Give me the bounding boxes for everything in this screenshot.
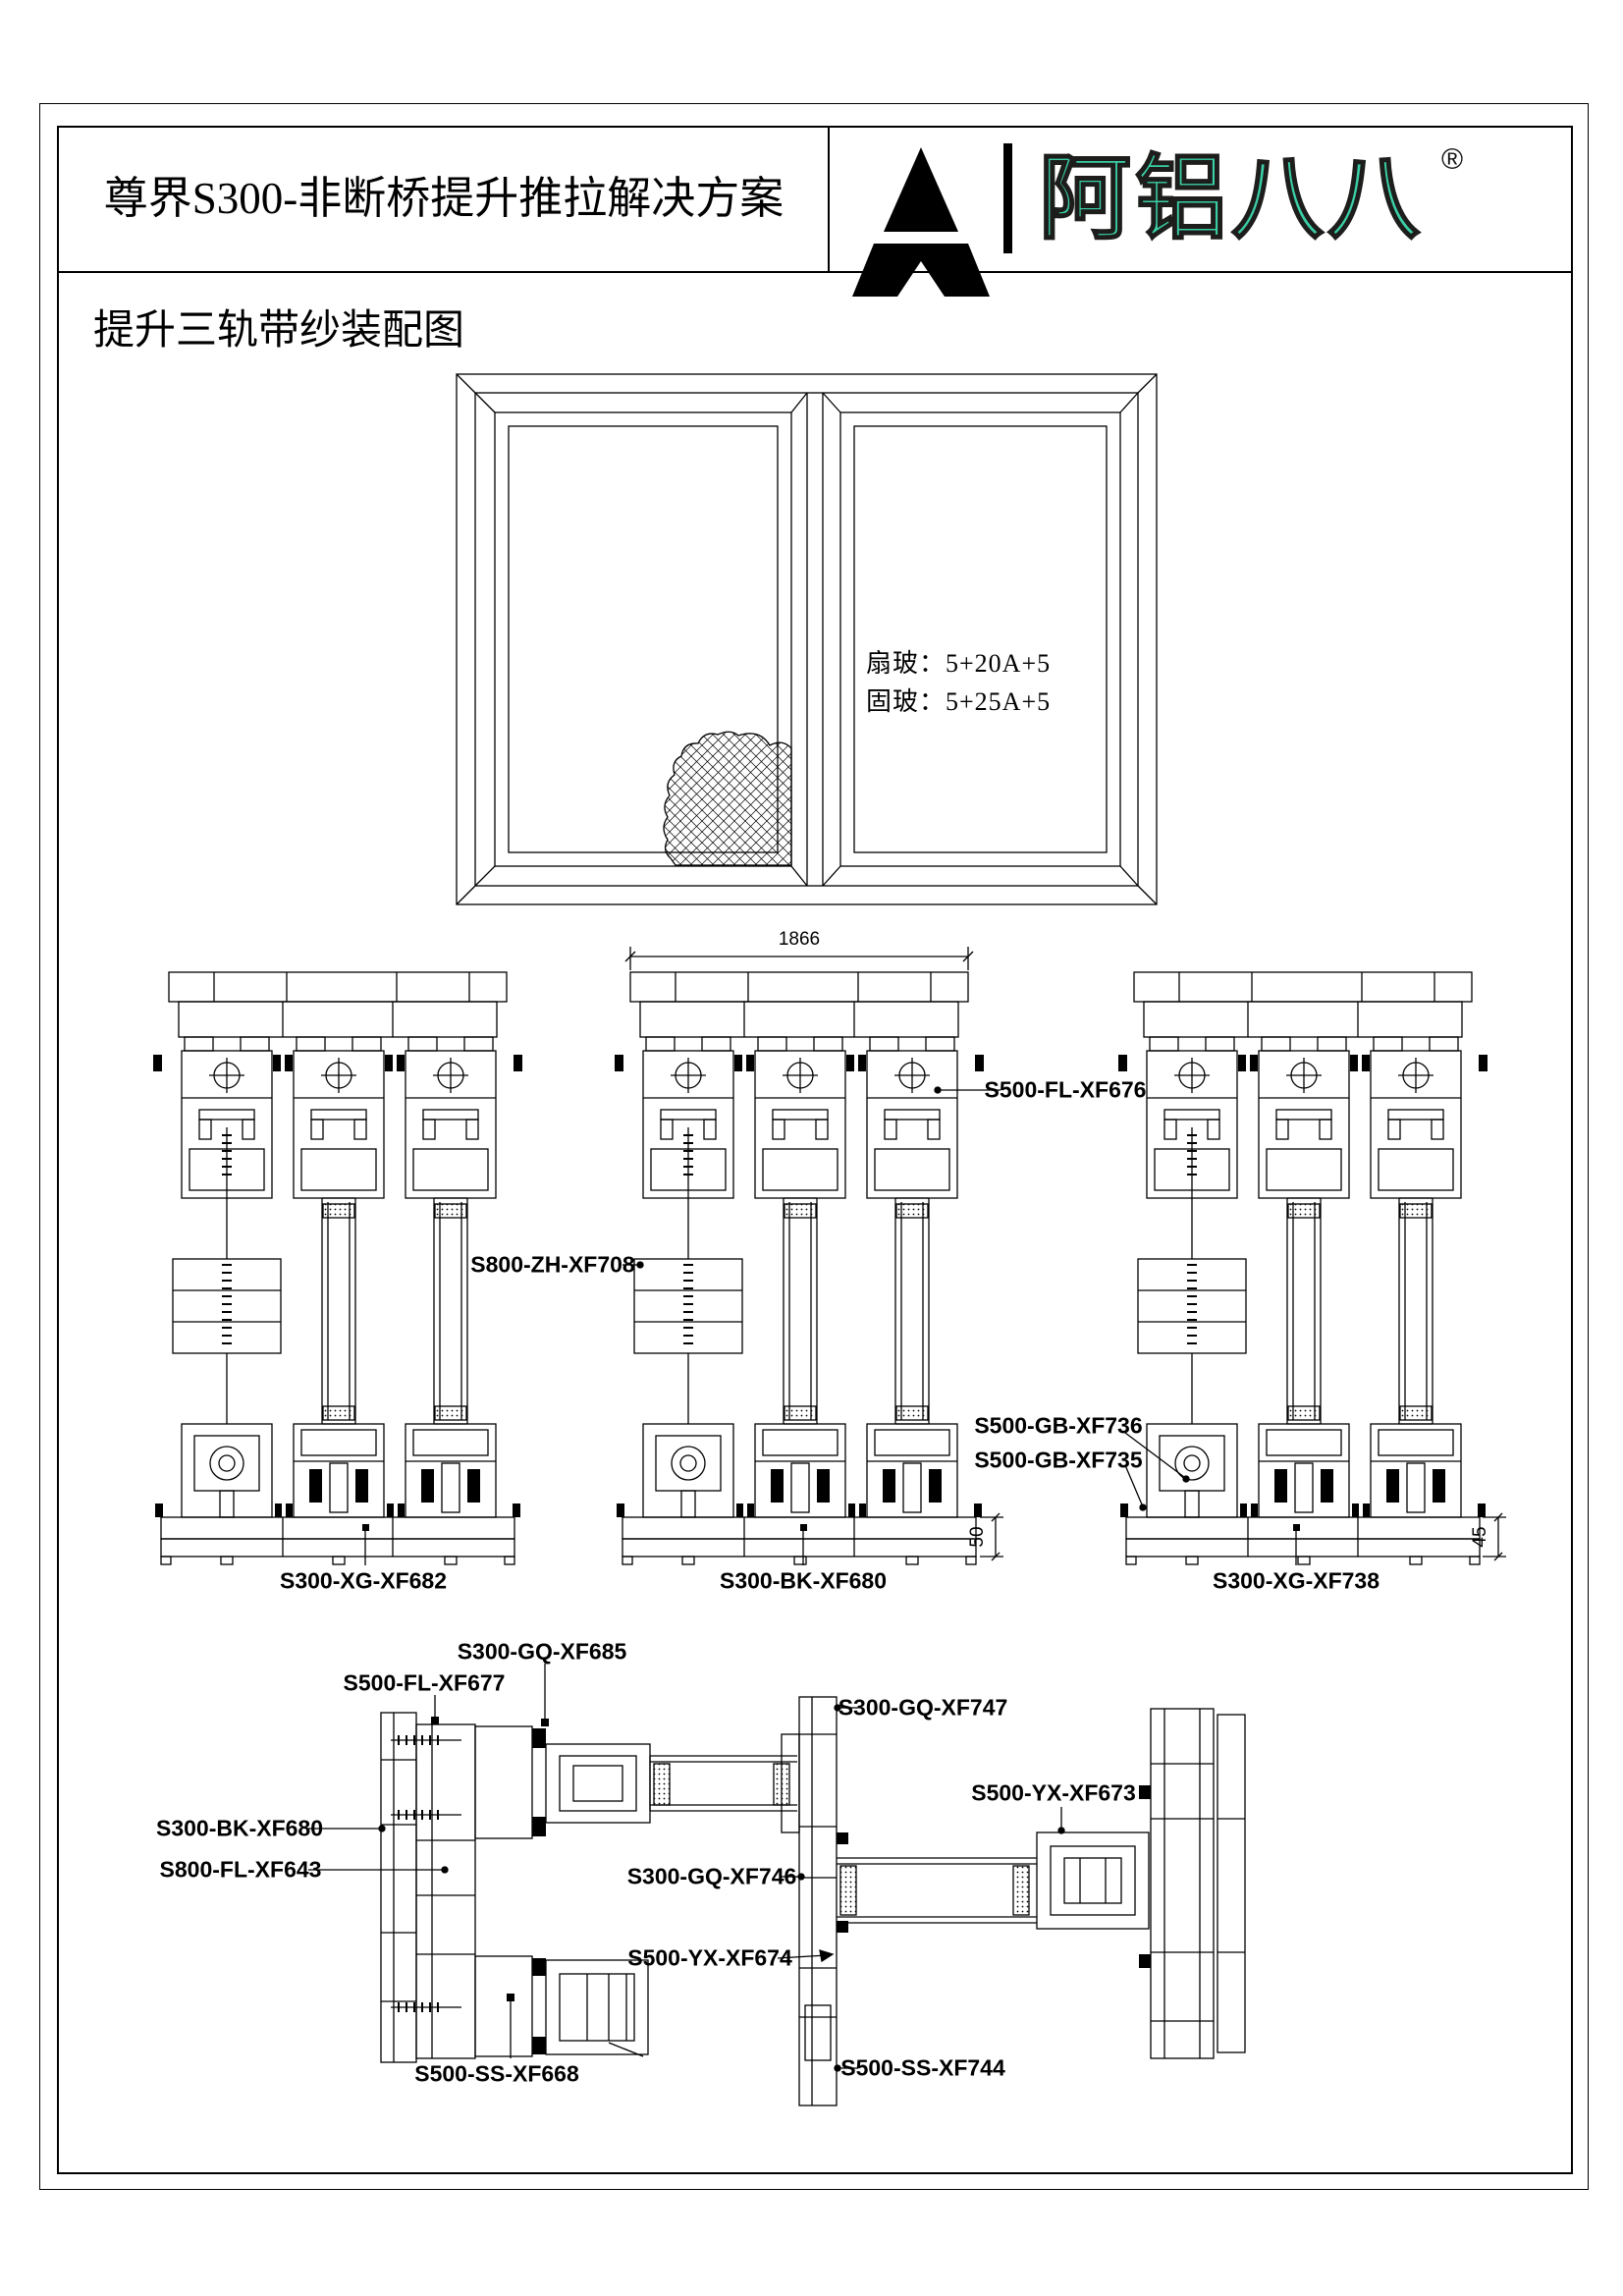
label-s300-bk-xf680-plan: S300-BK-XF680 xyxy=(156,1816,323,1842)
label-s500-gb-xf736: S500-GB-XF736 xyxy=(974,1413,1142,1440)
label-s800-fl-xf643: S800-FL-XF643 xyxy=(160,1857,322,1884)
screen-mesh-patch xyxy=(664,732,791,865)
window-elevation-drawing xyxy=(457,374,1157,904)
label-s800-zh-xf708: S800-ZH-XF708 xyxy=(470,1252,634,1279)
cross-section-left xyxy=(153,972,522,1564)
label-s500-yx-xf673: S500-YX-XF673 xyxy=(971,1780,1135,1807)
plan-detail-right xyxy=(837,1709,1245,2058)
drawing-sheet: 尊界S300-非断桥提升推拉解决方案 提升三轨带纱装配图 阿铝八八 ® xyxy=(0,0,1623,2296)
label-s500-ss-xf744: S500-SS-XF744 xyxy=(840,2055,1004,2082)
dim-text-50: 50 xyxy=(967,1526,989,1547)
label-s300-gq-xf685: S300-GQ-XF685 xyxy=(458,1639,627,1666)
sash-glass-note: 扇玻：5+20A+5 xyxy=(866,643,1051,680)
cross-section-middle xyxy=(615,972,984,1564)
label-s500-ss-xf668: S500-SS-XF668 xyxy=(414,2061,578,2088)
cross-section-right xyxy=(1118,972,1488,1564)
label-s500-fl-xf677: S500-FL-XF677 xyxy=(344,1670,506,1697)
label-s300-xg-xf682: S300-XG-XF682 xyxy=(280,1568,447,1595)
dim-text-1866: 1866 xyxy=(779,929,820,951)
label-s300-gq-xf747: S300-GQ-XF747 xyxy=(839,1695,1008,1722)
label-s300-gq-xf746: S300-GQ-XF746 xyxy=(627,1864,797,1890)
label-s500-yx-xf674: S500-YX-XF674 xyxy=(627,1945,791,1972)
label-s500-fl-xf676: S500-FL-XF676 xyxy=(985,1077,1147,1104)
fixed-glass-note: 固玻：5+25A+5 xyxy=(866,682,1051,718)
label-s300-xg-xf738: S300-XG-XF738 xyxy=(1213,1568,1380,1595)
label-s300-bk-xf680: S300-BK-XF680 xyxy=(720,1568,887,1595)
cad-drawing-canvas xyxy=(0,0,1623,2296)
label-s500-gb-xf735: S500-GB-XF735 xyxy=(974,1448,1142,1474)
dim-text-45: 45 xyxy=(1470,1526,1491,1547)
